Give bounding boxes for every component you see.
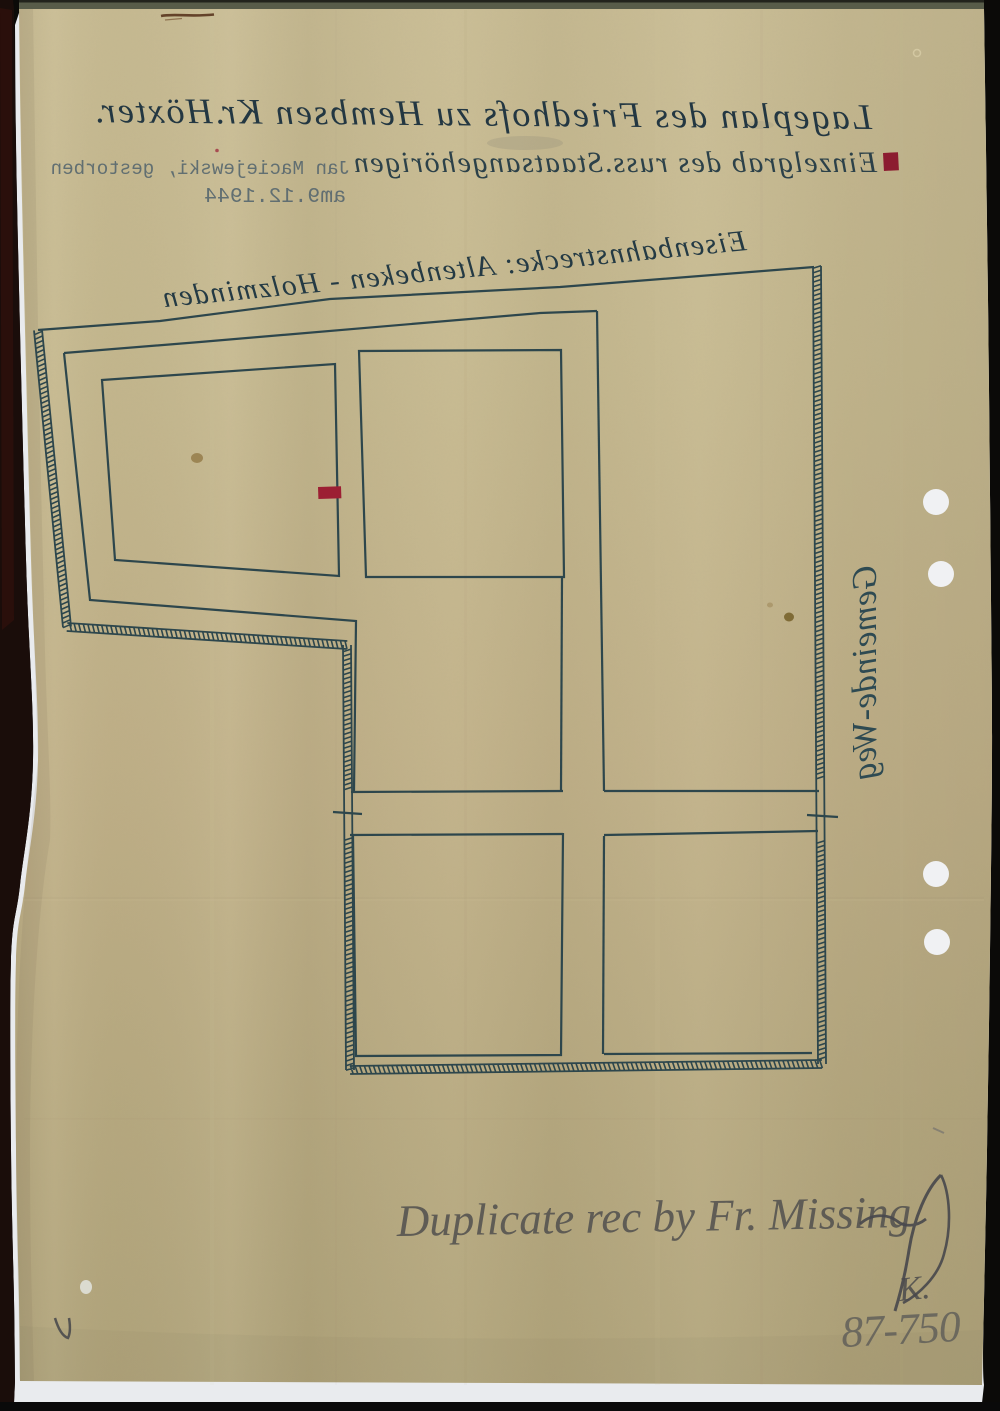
svg-text:Lageplan des Friedhofs zu Hemb: Lageplan des Friedhofs zu Hembsen Kr.Höx… — [92, 90, 873, 137]
svg-text:am9.12.1944: am9.12.1944 — [204, 185, 346, 209]
svg-text:Jan Maciejewski, gestorben: Jan Maciejewski, gestorben — [51, 158, 350, 180]
svg-text:87-750: 87-750 — [840, 1302, 962, 1357]
svg-text:Einzelgrab des russ.Staatsange: Einzelgrab des russ.Staatsangehörigen — [352, 146, 878, 179]
svg-text:Gemeinde-Weg: Gemeinde-Weg — [846, 565, 884, 780]
svg-text:Duplicate rec by Fr. Missing: Duplicate rec by Fr. Missing — [395, 1187, 911, 1246]
